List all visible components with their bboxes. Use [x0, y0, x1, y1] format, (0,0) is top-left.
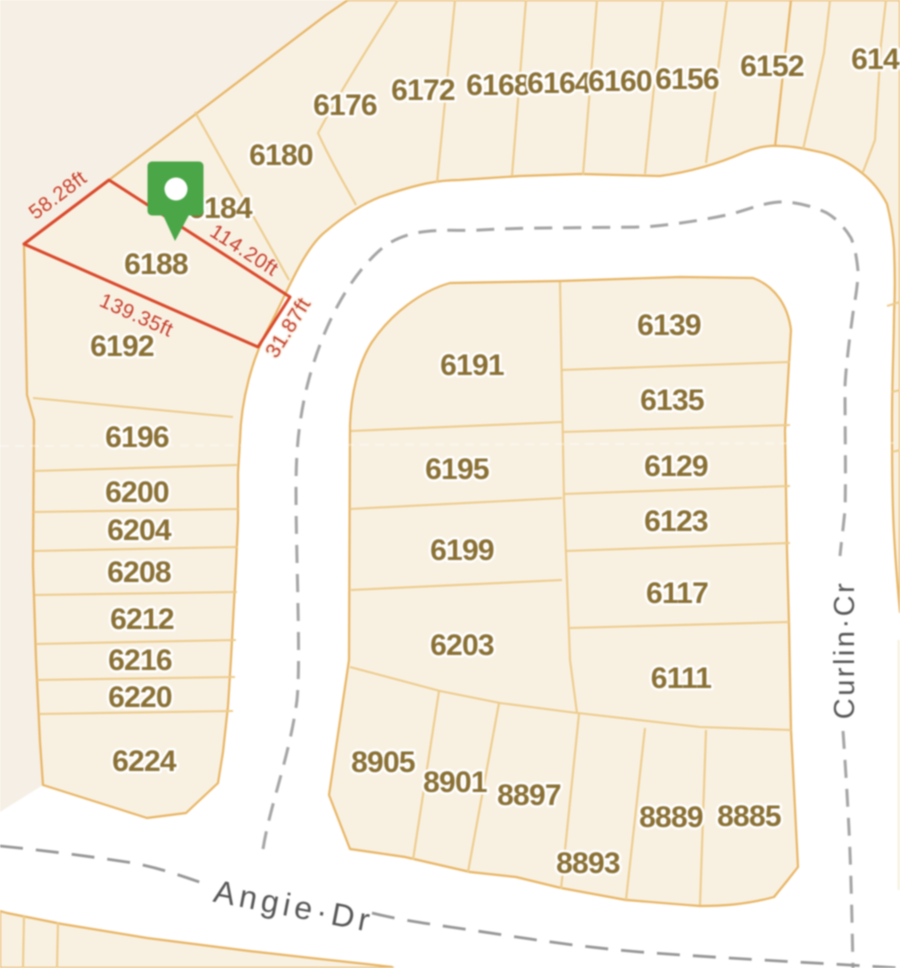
svg-text:8901: 8901: [423, 766, 487, 799]
svg-text:6204: 6204: [107, 514, 172, 547]
svg-text:6135: 6135: [640, 384, 704, 417]
svg-text:6129: 6129: [644, 450, 708, 483]
svg-text:6200: 6200: [105, 476, 169, 509]
svg-text:6152: 6152: [740, 50, 804, 83]
svg-text:6203: 6203: [430, 629, 494, 662]
svg-text:6188: 6188: [124, 248, 188, 281]
svg-text:6199: 6199: [430, 534, 494, 567]
svg-text:8897: 8897: [497, 779, 561, 812]
svg-text:8893: 8893: [556, 847, 620, 880]
svg-text:6220: 6220: [108, 681, 172, 714]
svg-text:6180: 6180: [249, 139, 313, 172]
svg-text:6111: 6111: [651, 662, 711, 695]
svg-text:6224: 6224: [112, 745, 177, 778]
svg-text:6123: 6123: [644, 505, 708, 538]
svg-text:8885: 8885: [717, 800, 781, 833]
svg-text:6156: 6156: [655, 63, 719, 96]
svg-text:6195: 6195: [425, 453, 489, 486]
svg-text:6139: 6139: [637, 309, 701, 342]
svg-text:6168: 6168: [466, 69, 530, 102]
svg-text:8889: 8889: [639, 801, 703, 834]
svg-text:6117: 6117: [646, 577, 708, 610]
svg-text:Curlin·Cr: Curlin·Cr: [829, 581, 861, 720]
svg-text:6191: 6191: [440, 349, 504, 382]
svg-text:6212: 6212: [110, 603, 174, 636]
svg-text:6196: 6196: [105, 421, 169, 454]
svg-text:6160: 6160: [588, 65, 652, 98]
svg-text:6208: 6208: [107, 556, 171, 589]
svg-text:6192: 6192: [90, 330, 154, 363]
svg-text:8905: 8905: [351, 746, 415, 779]
svg-text:6176: 6176: [313, 89, 377, 122]
svg-text:6148: 6148: [851, 43, 900, 76]
svg-text:6172: 6172: [391, 74, 455, 107]
svg-text:6216: 6216: [108, 644, 172, 677]
svg-text:6164: 6164: [527, 67, 592, 100]
